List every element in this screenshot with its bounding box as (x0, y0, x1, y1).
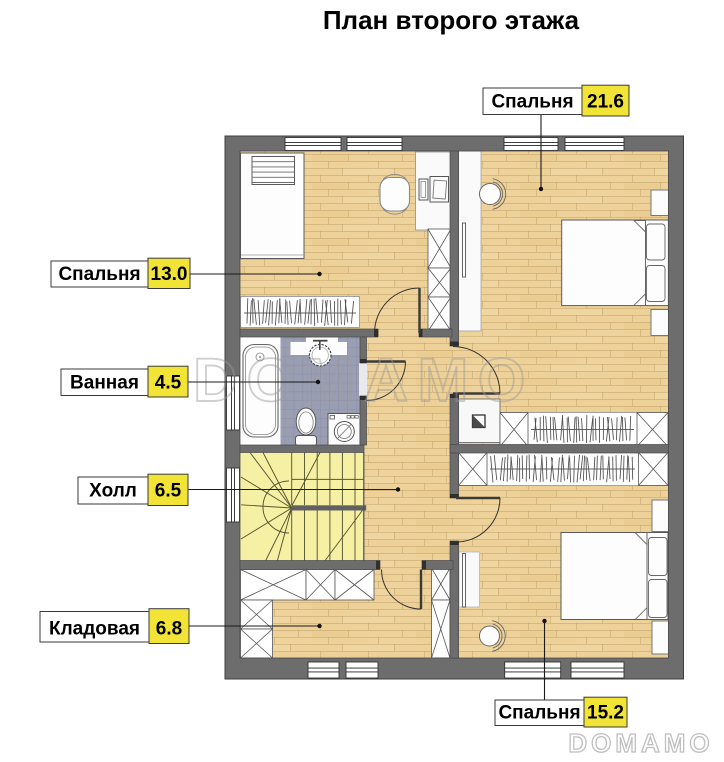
svg-text:13.0: 13.0 (151, 264, 188, 285)
svg-text:План второго этажа: План второго этажа (323, 5, 580, 35)
svg-text:Спальня: Спальня (498, 703, 580, 724)
svg-text:6.8: 6.8 (156, 619, 182, 640)
svg-text:DOMAMO: DOMAMO (568, 728, 713, 757)
svg-text:Ванная: Ванная (70, 373, 139, 394)
svg-text:21.6: 21.6 (587, 92, 624, 113)
svg-text:Кладовая: Кладовая (49, 619, 140, 640)
svg-text:15.2: 15.2 (587, 703, 624, 724)
svg-text:Спальня: Спальня (491, 92, 573, 113)
svg-text:Холл: Холл (89, 481, 137, 502)
svg-text:6.5: 6.5 (155, 481, 182, 502)
svg-text:DOMAMO: DOMAMO (193, 346, 535, 414)
svg-text:Спальня: Спальня (58, 264, 140, 285)
svg-text:4.5: 4.5 (155, 373, 182, 394)
